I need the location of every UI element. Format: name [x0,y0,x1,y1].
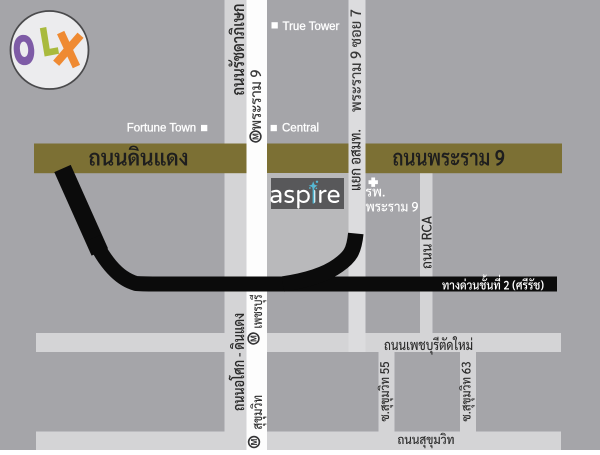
svg-text:Central: Central [282,123,319,135]
svg-text:Fortune Town: Fortune Town [127,123,196,135]
svg-text:M: M [250,438,259,445]
svg-text:True Tower: True Tower [283,21,340,33]
svg-text:M: M [249,335,258,342]
svg-text:M: M [251,133,260,140]
